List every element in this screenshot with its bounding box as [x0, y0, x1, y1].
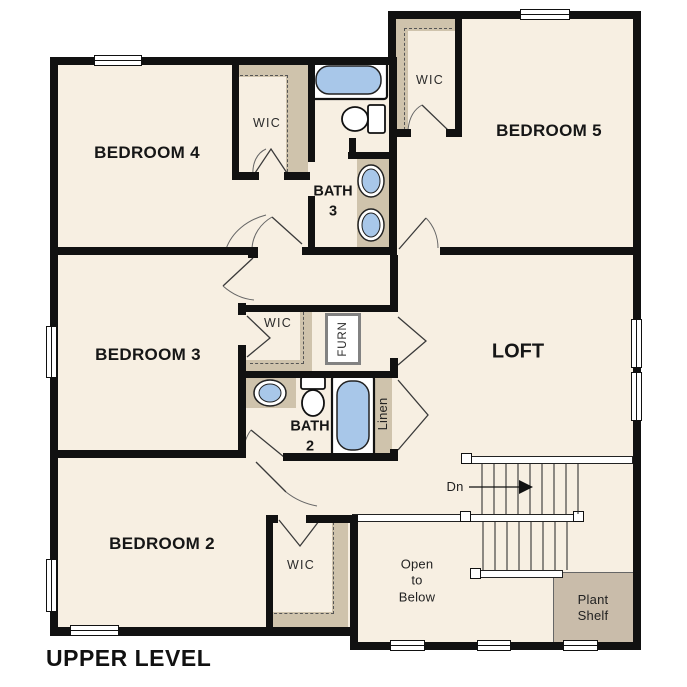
- stair-treads: [482, 464, 578, 570]
- door-wic-bedroom5: [422, 105, 449, 131]
- door-bedroom5: [399, 218, 426, 249]
- window: [94, 55, 142, 66]
- label-loft: LOFT: [492, 341, 544, 364]
- label-stairs-down: Dn: [446, 479, 463, 495]
- wall-wic3-furn-top: [238, 305, 398, 312]
- door-bath3: [272, 217, 302, 244]
- stairs-down-arrow: [469, 480, 533, 494]
- wall-outer-top-right: [388, 11, 641, 19]
- door-bedroom5-arc: [426, 218, 438, 248]
- label-bedroom-4: BEDROOM 4: [94, 143, 200, 163]
- door-bedroom3: [223, 258, 253, 286]
- label-open-line3: Below: [399, 589, 435, 604]
- window: [631, 372, 642, 421]
- wall-wic2-left: [266, 515, 273, 628]
- label-plant-line1: Plant: [578, 592, 609, 607]
- door-bedroom2: [256, 462, 286, 492]
- label-bath-3: BATH 3: [313, 182, 352, 221]
- door-bath3-arc: [252, 217, 272, 248]
- label-bath-3-line2: 3: [329, 203, 337, 219]
- window: [563, 640, 598, 651]
- door-bedroom2-arc: [286, 492, 317, 506]
- label-open-to-below: Open to Below: [399, 557, 435, 606]
- label-wic-bedroom2: WIC: [287, 558, 315, 572]
- wall-bath3-left-upper: [308, 57, 315, 162]
- label-bath-2: BATH 2: [290, 417, 329, 456]
- window: [631, 319, 642, 368]
- bathtub-bath2: [332, 376, 374, 456]
- window: [70, 625, 119, 636]
- toilet-bath3: [342, 105, 385, 133]
- wall-wic2-top-b: [306, 515, 352, 523]
- wall-hall-b: [302, 247, 397, 255]
- wall-furn-stub: [390, 358, 398, 378]
- wall-bath3-vanity-stub: [349, 138, 356, 159]
- wall-bath2-top: [238, 371, 398, 378]
- wall-wic5-bottom-a: [394, 129, 411, 137]
- label-bath-2-line2: 2: [306, 438, 314, 454]
- door-bedroom3-arc: [223, 286, 254, 300]
- wall-wic5-right: [455, 11, 462, 133]
- door-wic-bedroom5-arc: [408, 105, 422, 130]
- toilet-bath2: [301, 377, 325, 416]
- window: [477, 640, 511, 651]
- label-bath-2-line1: BATH: [290, 418, 329, 434]
- label-wic-bedroom3: WIC: [264, 316, 292, 330]
- label-furn: FURN: [337, 321, 349, 356]
- label-wic-bedroom5: WIC: [416, 73, 444, 87]
- wall-hall-stub: [248, 247, 258, 258]
- wall-bedroom3-bottom: [50, 450, 246, 458]
- page-title: UPPER LEVEL: [46, 645, 211, 672]
- double-sinks-bath3: [358, 165, 384, 241]
- wall-center-vertical: [389, 57, 397, 255]
- wall-bedroom3-right-b: [238, 345, 246, 455]
- wall-hall-c: [440, 247, 633, 255]
- label-plant-line2: Shelf: [578, 608, 609, 623]
- door-bath2: [251, 430, 284, 457]
- door-bedroom4-arc: [226, 215, 266, 249]
- wall-open-below-left: [350, 515, 358, 644]
- wall-loft-west: [390, 255, 398, 312]
- label-bedroom-5: BEDROOM 5: [496, 121, 602, 141]
- sink-bath2: [254, 380, 286, 406]
- label-linen: Linen: [375, 398, 391, 431]
- wall-wic4-bottom-b: [284, 172, 310, 180]
- window: [390, 640, 425, 651]
- door-wic-bedroom2: [279, 520, 319, 546]
- wall-wic4-bottom-a: [232, 172, 259, 180]
- label-plant-shelf: Plant Shelf: [578, 592, 609, 625]
- label-open-line1: Open: [401, 557, 434, 572]
- window: [520, 9, 570, 20]
- window: [46, 326, 57, 378]
- label-bedroom-3: BEDROOM 3: [95, 345, 201, 365]
- label-bedroom-2: BEDROOM 2: [109, 534, 215, 554]
- label-wic-bedroom4: WIC: [253, 116, 281, 130]
- wall-wic5-bottom-b: [446, 129, 462, 137]
- door-furnace: [398, 317, 426, 365]
- window: [46, 559, 57, 612]
- wall-wic4-left: [232, 57, 239, 180]
- door-linen: [398, 380, 428, 450]
- floor-plan: BEDROOM 4 BEDROOM 5 BEDROOM 3 BEDROOM 2 …: [0, 0, 687, 687]
- wall-hall-a: [50, 247, 258, 255]
- bathtub-bath3: [311, 61, 387, 99]
- label-bath-3-line1: BATH: [313, 183, 352, 199]
- label-open-line2: to: [411, 573, 422, 588]
